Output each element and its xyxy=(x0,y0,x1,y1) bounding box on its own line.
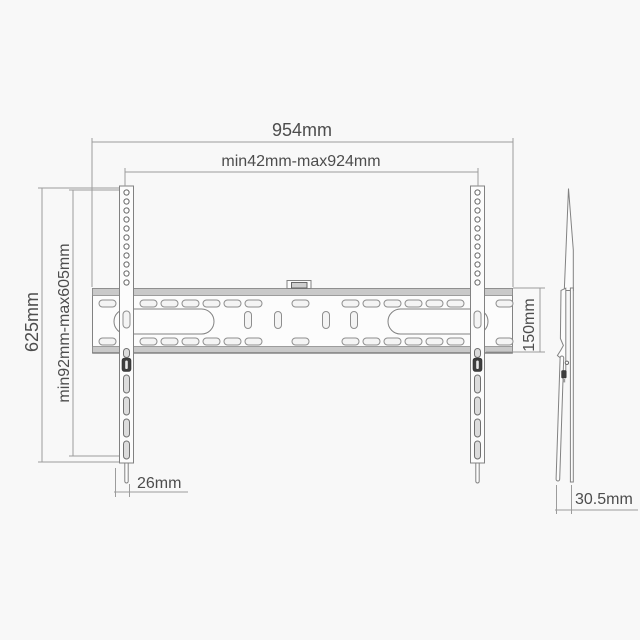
rail-lower-slot xyxy=(475,441,481,459)
plate-slot xyxy=(161,338,178,345)
plate-slot xyxy=(363,300,380,307)
rail-lower-slot xyxy=(124,397,130,415)
tv-rail xyxy=(471,186,485,483)
side-lock-clip xyxy=(562,371,567,379)
dimension-depth: 30.5mm xyxy=(555,485,638,514)
plate-slot xyxy=(405,300,422,307)
plate-slot xyxy=(99,338,116,345)
plate-slot xyxy=(203,300,220,307)
rail-hole xyxy=(475,235,480,240)
plate-slot xyxy=(384,300,401,307)
front-view xyxy=(93,186,514,483)
rail-lower-slot xyxy=(475,397,481,415)
dimension-diagram: 954mm min42mm-max924mm 625mm min92mm-max… xyxy=(0,0,640,640)
side-view xyxy=(556,189,573,483)
plate-slot xyxy=(426,300,443,307)
rail-lower-slot xyxy=(124,375,130,393)
plate-slot xyxy=(292,338,309,345)
plate-height-label: 150mm xyxy=(521,298,538,351)
rail-hole xyxy=(124,208,129,213)
plate-slot xyxy=(405,338,422,345)
wall-plate-bottom-flange xyxy=(93,347,513,354)
dimension-mount-width-range: min42mm-max924mm xyxy=(125,153,478,186)
rail-hole xyxy=(475,271,480,276)
mount-height-range-label: min92mm-max605mm xyxy=(56,243,73,402)
rail-hole xyxy=(124,280,129,285)
tv-mount-drawing: 954mm min42mm-max924mm 625mm min92mm-max… xyxy=(0,0,640,640)
rail-cross-slot xyxy=(474,311,481,328)
plate-slot xyxy=(245,300,262,307)
plate-slot xyxy=(447,338,464,345)
rail-hole xyxy=(124,226,129,231)
plate-slot xyxy=(161,300,178,307)
wall-plate xyxy=(93,281,514,354)
rail-lower-slot xyxy=(124,419,130,437)
bubble-level-window xyxy=(292,283,308,289)
rail-hole xyxy=(475,199,480,204)
plate-slot xyxy=(363,338,380,345)
plate-slot xyxy=(245,338,262,345)
plate-slot xyxy=(384,338,401,345)
plate-slot xyxy=(292,300,309,307)
plate-slot xyxy=(342,338,359,345)
rail-hole xyxy=(124,235,129,240)
rail-lower-slot xyxy=(124,441,130,459)
rail-hole xyxy=(124,262,129,267)
plate-slot xyxy=(426,338,443,345)
plate-vertical-slot xyxy=(275,312,282,329)
rail-short-slot xyxy=(124,349,130,358)
plate-slot xyxy=(496,338,513,345)
rail-hole xyxy=(124,199,129,204)
overall-height-label: 625mm xyxy=(22,292,42,352)
plate-vertical-slot xyxy=(323,312,330,329)
rail-hole xyxy=(124,244,129,249)
dimension-overall-width: 954mm xyxy=(92,120,513,287)
tv-rail xyxy=(120,186,134,483)
rail-hole xyxy=(475,280,480,285)
rail-cross-slot xyxy=(123,311,130,328)
mount-width-range-label: min42mm-max924mm xyxy=(221,153,380,170)
plate-vertical-slot xyxy=(351,312,358,329)
plate-slot xyxy=(203,338,220,345)
rail-hole xyxy=(475,190,480,195)
plate-slot xyxy=(342,300,359,307)
side-wall-plate xyxy=(570,288,573,482)
overall-width-label: 954mm xyxy=(272,120,332,140)
rail-hole xyxy=(124,217,129,222)
rail-hole xyxy=(475,217,480,222)
plate-slot xyxy=(224,300,241,307)
side-lock-clip-tail xyxy=(563,379,566,382)
rail-hole xyxy=(124,253,129,258)
rail-lower-slot xyxy=(475,375,481,393)
plate-slot xyxy=(140,300,157,307)
rail-hole xyxy=(475,208,480,213)
depth-label: 30.5mm xyxy=(575,491,633,508)
rail-lock-clip-slit xyxy=(476,361,479,370)
side-screw-hole xyxy=(565,361,568,364)
wall-plate-top-flange xyxy=(93,289,513,296)
plate-slot xyxy=(182,338,199,345)
rail-hole xyxy=(475,253,480,258)
plate-slot xyxy=(447,300,464,307)
rail-hole xyxy=(475,244,480,249)
plate-vertical-slot xyxy=(245,312,252,329)
rail-hole xyxy=(124,271,129,276)
rail-width-label: 26mm xyxy=(137,475,181,492)
plate-slot xyxy=(496,300,513,307)
rail-hole xyxy=(475,262,480,267)
plate-slot xyxy=(182,300,199,307)
rail-short-slot xyxy=(475,349,481,358)
rail-lower-slot xyxy=(475,419,481,437)
plate-slot xyxy=(140,338,157,345)
side-rail-taper xyxy=(564,189,573,291)
rail-hole xyxy=(475,226,480,231)
plate-slot xyxy=(224,338,241,345)
rail-hole xyxy=(124,190,129,195)
rail-lock-clip-slit xyxy=(125,361,128,370)
plate-slot xyxy=(99,300,116,307)
